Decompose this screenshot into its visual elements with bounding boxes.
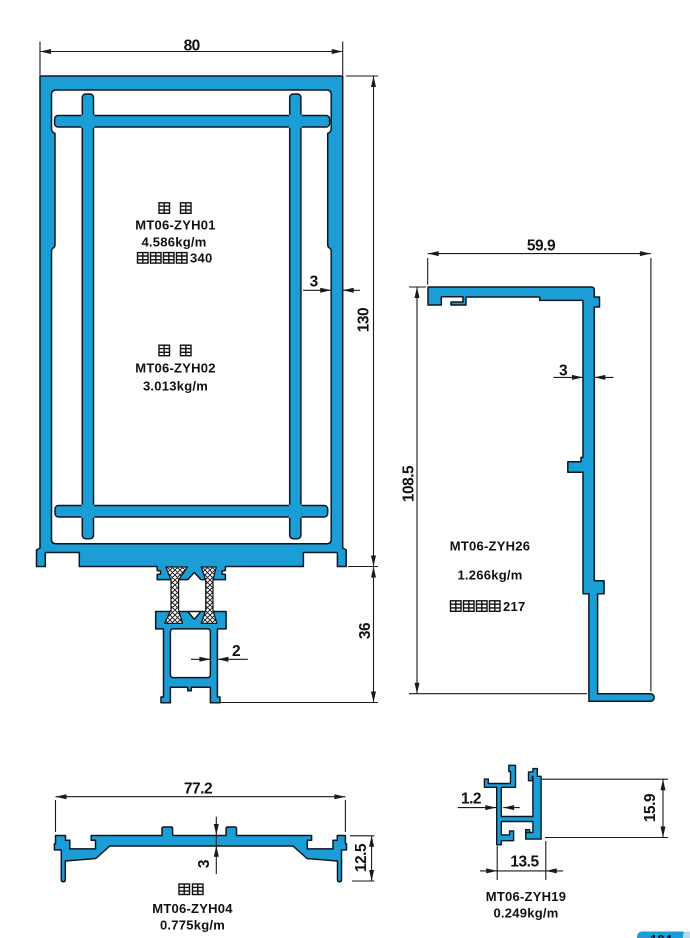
svg-text:MT06-ZYH26: MT06-ZYH26 [450, 539, 531, 554]
svg-text:1.2: 1.2 [461, 791, 481, 808]
svg-text:59.9: 59.9 [527, 238, 556, 255]
svg-text:0.775kg/m: 0.775kg/m [160, 918, 225, 933]
svg-text:340: 340 [190, 251, 212, 266]
svg-text:13.5: 13.5 [510, 854, 539, 871]
svg-text:MT06-ZYH19: MT06-ZYH19 [486, 889, 567, 904]
svg-text:15.9: 15.9 [642, 793, 659, 822]
svg-text:3.013kg/m: 3.013kg/m [143, 379, 208, 394]
svg-text:4.586kg/m: 4.586kg/m [141, 235, 206, 250]
svg-text:0.249kg/m: 0.249kg/m [493, 906, 558, 921]
svg-text:217: 217 [503, 599, 525, 614]
svg-text:80: 80 [184, 37, 200, 54]
svg-text:104: 104 [650, 932, 672, 938]
svg-text:130: 130 [356, 308, 373, 332]
svg-text:108.5: 108.5 [401, 465, 418, 502]
svg-text:3: 3 [559, 362, 568, 379]
svg-text:1.266kg/m: 1.266kg/m [457, 568, 522, 583]
svg-text:MT06-ZYH02: MT06-ZYH02 [135, 361, 216, 376]
svg-text:MT06-ZYH01: MT06-ZYH01 [135, 218, 216, 233]
svg-text:MT06-ZYH04: MT06-ZYH04 [152, 901, 233, 916]
svg-text:77.2: 77.2 [184, 780, 212, 797]
svg-text:12.5: 12.5 [353, 843, 370, 872]
svg-text:2: 2 [232, 643, 240, 660]
svg-text:3: 3 [196, 859, 213, 868]
svg-text:3: 3 [310, 274, 319, 291]
svg-text:36: 36 [357, 622, 374, 639]
